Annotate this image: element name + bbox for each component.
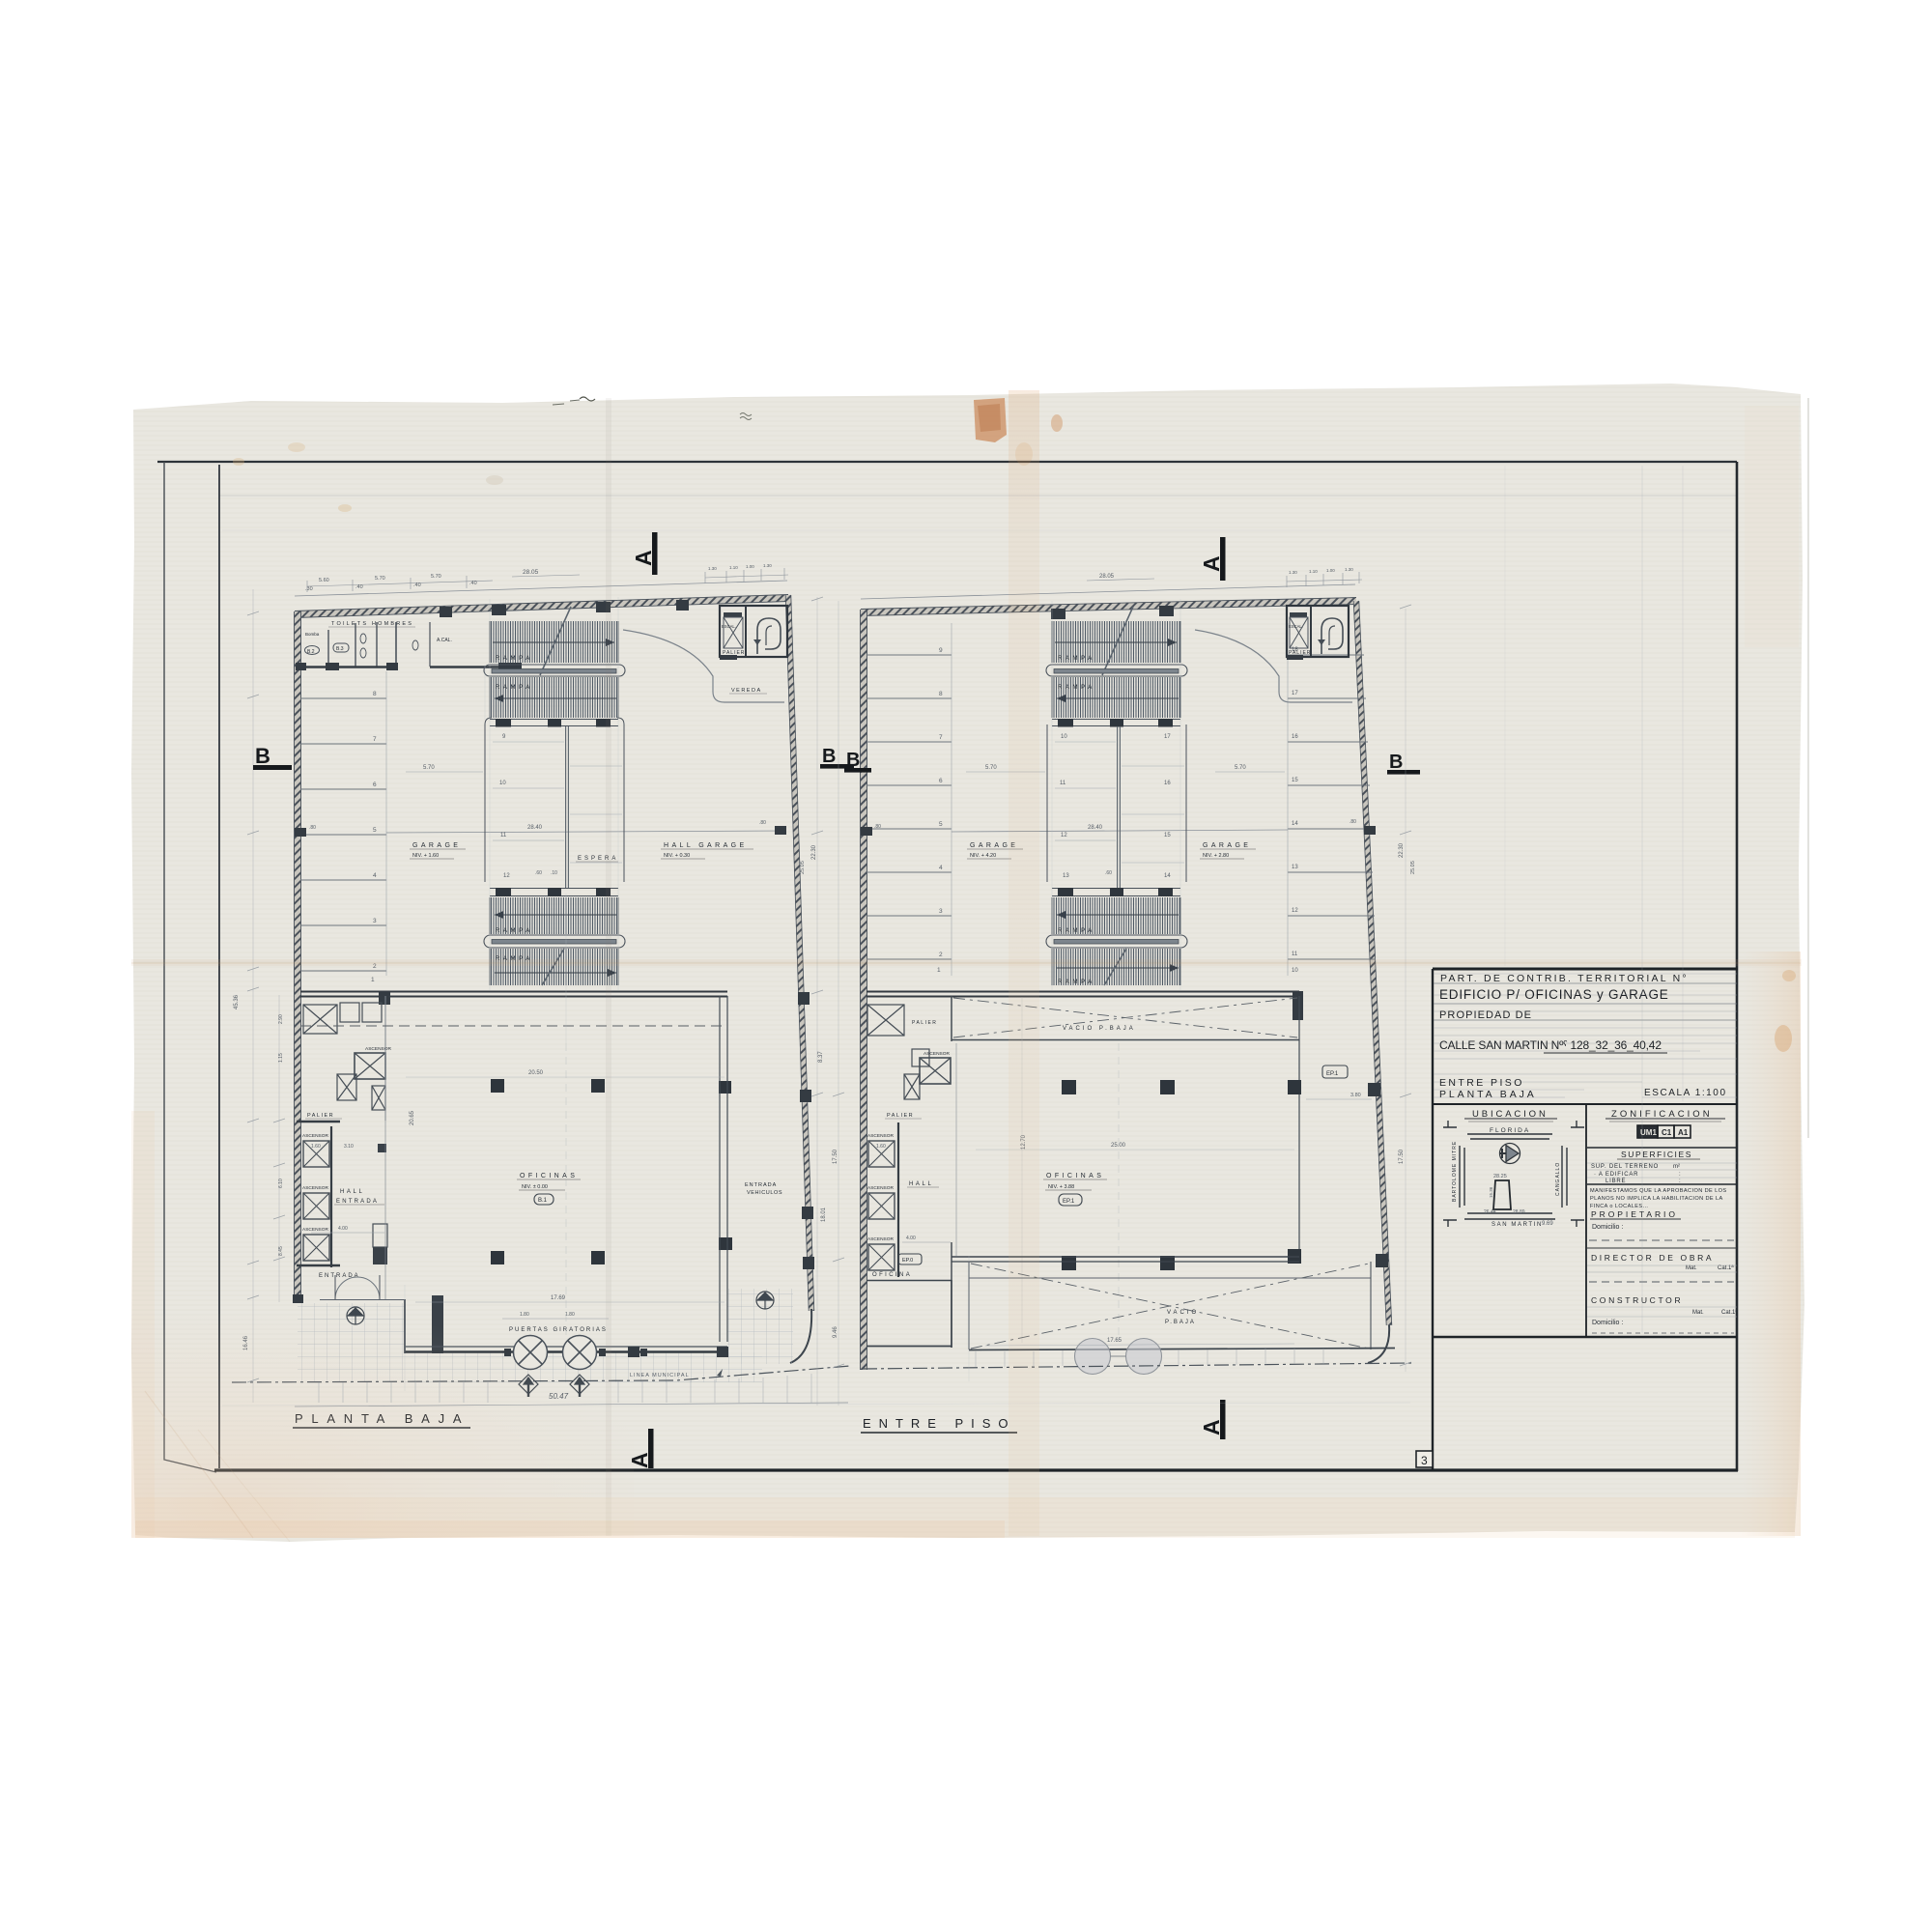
svg-text:3.80: 3.80 xyxy=(1350,1093,1361,1098)
svg-text:TOILETS HOMBRES: TOILETS HOMBRES xyxy=(331,621,413,627)
svg-text:2: 2 xyxy=(939,952,943,958)
svg-text:P.BAJA: P.BAJA xyxy=(1165,1320,1196,1325)
svg-text:PALIER: PALIER xyxy=(912,1020,937,1026)
svg-text:.80: .80 xyxy=(874,824,881,830)
svg-text:8: 8 xyxy=(939,691,943,697)
svg-text:17.69: 17.69 xyxy=(551,1295,566,1301)
svg-text:1.10: 1.10 xyxy=(1309,569,1318,574)
svg-text:5: 5 xyxy=(939,821,943,828)
svg-text:10: 10 xyxy=(1061,734,1067,740)
svg-text:25.05: 25.05 xyxy=(1410,861,1416,874)
svg-text:12: 12 xyxy=(1061,833,1067,838)
svg-text:1: 1 xyxy=(371,977,375,983)
svg-text:10: 10 xyxy=(1292,968,1298,974)
svg-text:ENTRADA: ENTRADA xyxy=(745,1182,777,1188)
svg-text:20.65: 20.65 xyxy=(410,1110,415,1125)
svg-text:7: 7 xyxy=(939,734,943,741)
svg-text:Domicilio :: Domicilio : xyxy=(1592,1320,1623,1326)
svg-text:ENTRADA: ENTRADA xyxy=(319,1273,360,1279)
svg-text:NIV. + 3.88: NIV. + 3.88 xyxy=(1048,1184,1074,1190)
svg-text:Bomba: Bomba xyxy=(305,632,320,637)
svg-text:4.00: 4.00 xyxy=(338,1226,348,1232)
svg-text:1.15: 1.15 xyxy=(278,1053,284,1063)
svg-text:5.70: 5.70 xyxy=(423,765,435,771)
svg-text:1.00: 1.00 xyxy=(746,564,754,569)
svg-text:.30: .30 xyxy=(305,586,313,592)
svg-text:OFICINAS: OFICINAS xyxy=(1046,1173,1104,1179)
svg-text:22.30: 22.30 xyxy=(811,844,817,860)
svg-text:Mat.: Mat. xyxy=(1692,1310,1704,1316)
svg-text:5.70: 5.70 xyxy=(985,765,997,771)
svg-text:6.10: 6.10 xyxy=(278,1179,284,1188)
svg-text:26.44: 26.44 xyxy=(1484,1209,1496,1215)
svg-text:SUPERFICIES: SUPERFICIES xyxy=(1621,1150,1694,1159)
svg-text:PLANOS NO IMPLICA LA HABILITAC: PLANOS NO IMPLICA LA HABILITACION DE LA xyxy=(1590,1196,1723,1202)
svg-text:UM1: UM1 xyxy=(1640,1128,1657,1137)
svg-text:B: B xyxy=(1389,752,1403,773)
svg-text:9.69: 9.69 xyxy=(1542,1221,1553,1227)
svg-text:12: 12 xyxy=(503,873,510,879)
svg-text:16: 16 xyxy=(1292,734,1298,740)
svg-text:4: 4 xyxy=(939,865,943,871)
svg-text:MANIFESTAMOS QUE LA APROBACION: MANIFESTAMOS QUE LA APROBACION DE LOS xyxy=(1590,1188,1727,1194)
svg-text:16: 16 xyxy=(1164,781,1171,786)
svg-text:PROPIEDAD DE: PROPIEDAD DE xyxy=(1439,1009,1534,1021)
svg-text:3: 3 xyxy=(1421,1454,1428,1467)
svg-text:ASCENSOR: ASCENSOR xyxy=(365,1046,391,1052)
svg-text:CONSTRUCTOR: CONSTRUCTOR xyxy=(1591,1295,1684,1305)
svg-text:NIV. + 4.20: NIV. + 4.20 xyxy=(970,853,996,859)
svg-text:28.05: 28.05 xyxy=(523,569,539,576)
svg-text:12: 12 xyxy=(1292,908,1298,914)
svg-text:ESPERA: ESPERA xyxy=(578,856,618,862)
svg-text:ASCENSOR: ASCENSOR xyxy=(302,1185,328,1191)
svg-text:1.00: 1.00 xyxy=(1326,568,1335,573)
svg-text:9.46: 9.46 xyxy=(833,1326,838,1338)
svg-text:A1: A1 xyxy=(1678,1128,1689,1137)
svg-text:25.05: 25.05 xyxy=(800,861,806,874)
svg-text:UBICACION: UBICACION xyxy=(1472,1109,1549,1120)
svg-text:4.00: 4.00 xyxy=(906,1236,916,1241)
svg-text:14: 14 xyxy=(1292,821,1298,827)
svg-text:17.50: 17.50 xyxy=(1399,1149,1405,1164)
svg-text:ASCENSOR: ASCENSOR xyxy=(867,1133,894,1139)
svg-text:EP.1: EP.1 xyxy=(1326,1071,1339,1077)
svg-text:B.2: B.2 xyxy=(307,649,315,655)
svg-text:11: 11 xyxy=(1292,952,1298,957)
svg-text:3.10: 3.10 xyxy=(344,1144,354,1150)
svg-text:13: 13 xyxy=(1063,873,1069,879)
svg-text:HALL: HALL xyxy=(909,1181,933,1187)
svg-text:7: 7 xyxy=(373,736,377,743)
svg-text:PALIER: PALIER xyxy=(887,1113,914,1119)
svg-text:B.3: B.3 xyxy=(336,646,344,652)
svg-text:17: 17 xyxy=(1292,691,1298,696)
svg-text:8.37: 8.37 xyxy=(818,1051,824,1063)
svg-text:RAMPA: RAMPA xyxy=(1058,656,1095,662)
svg-text:EP.1: EP.1 xyxy=(1063,1199,1075,1205)
svg-text:GARAGE: GARAGE xyxy=(412,842,461,849)
svg-text:.80: .80 xyxy=(1350,819,1356,825)
svg-text:B: B xyxy=(255,744,270,768)
svg-text:2.90: 2.90 xyxy=(278,1014,284,1024)
svg-text:RAMPA: RAMPA xyxy=(496,656,533,662)
svg-text:11: 11 xyxy=(500,833,507,838)
svg-text:OFICINA: OFICINA xyxy=(872,1272,912,1278)
svg-text:· A EDIFICAR: · A EDIFICAR xyxy=(1594,1172,1638,1178)
svg-text:B: B xyxy=(846,750,860,771)
svg-text:VACIO P.BAJA: VACIO P.BAJA xyxy=(1063,1026,1136,1032)
svg-text:Domicilio :: Domicilio : xyxy=(1592,1224,1623,1231)
svg-text:22.30: 22.30 xyxy=(1399,842,1405,858)
svg-text:SUP. DEL TERRENO: SUP. DEL TERRENO xyxy=(1591,1164,1659,1170)
svg-text:28.40: 28.40 xyxy=(527,825,543,831)
svg-text:ESCAL.: ESCAL. xyxy=(722,624,736,629)
svg-text:VEHICULOS: VEHICULOS xyxy=(747,1190,782,1196)
svg-text:HALL GARAGE: HALL GARAGE xyxy=(664,842,748,849)
svg-text:1.30: 1.30 xyxy=(1345,567,1353,572)
svg-text:17: 17 xyxy=(1164,734,1171,740)
svg-text:LIBRE: LIBRE xyxy=(1605,1179,1626,1184)
svg-text:FLORIDA: FLORIDA xyxy=(1490,1127,1530,1134)
svg-text:5.70: 5.70 xyxy=(375,576,385,582)
svg-text:.80: .80 xyxy=(759,820,766,826)
svg-text:1.30: 1.30 xyxy=(1289,570,1297,575)
svg-text:ASCENSOR: ASCENSOR xyxy=(867,1185,894,1191)
svg-text:DIRECTOR DE OBRA: DIRECTOR DE OBRA xyxy=(1591,1253,1715,1263)
svg-text:PLANTA BAJA: PLANTA BAJA xyxy=(1439,1089,1536,1100)
svg-text:BARTOLOME MITRE: BARTOLOME MITRE xyxy=(1452,1141,1458,1202)
svg-text:OFICINAS: OFICINAS xyxy=(520,1173,578,1179)
svg-text:RAMPA: RAMPA xyxy=(1058,928,1095,934)
svg-text:9: 9 xyxy=(939,647,943,654)
svg-text:3: 3 xyxy=(373,918,377,924)
svg-text:NIV. + 0.30: NIV. + 0.30 xyxy=(664,853,690,859)
svg-text:6: 6 xyxy=(939,778,943,784)
svg-text:.40: .40 xyxy=(355,584,363,590)
svg-text:17.65: 17.65 xyxy=(1107,1338,1122,1344)
svg-text:5.70: 5.70 xyxy=(1235,765,1246,771)
svg-text:15: 15 xyxy=(1292,778,1298,783)
svg-text:1.60: 1.60 xyxy=(311,1144,321,1150)
svg-text:.60: .60 xyxy=(535,870,542,876)
svg-text:m²: m² xyxy=(1673,1164,1680,1170)
svg-text:NIV. + 2.80: NIV. + 2.80 xyxy=(1203,853,1229,859)
svg-text:RAMPA: RAMPA xyxy=(1058,980,1095,985)
svg-text:8.45: 8.45 xyxy=(278,1246,284,1256)
svg-text:ASCENSOR: ASCENSOR xyxy=(302,1227,328,1233)
svg-text:11: 11 xyxy=(1060,781,1066,786)
svg-text:Cat.1ª: Cat.1ª xyxy=(1721,1309,1738,1316)
svg-text:5.70: 5.70 xyxy=(431,574,441,580)
svg-text:ASCENSOR: ASCENSOR xyxy=(923,1051,950,1057)
svg-text:EDIFICIO P/ OFICINAS y GARAGE: EDIFICIO P/ OFICINAS y GARAGE xyxy=(1439,987,1671,1002)
svg-text:45.36: 45.36 xyxy=(234,994,240,1009)
svg-text:HALL: HALL xyxy=(340,1189,364,1195)
svg-text:ENTRE PISO: ENTRE PISO xyxy=(1439,1077,1524,1089)
svg-text:PART. DE CONTRIB. TERRITORIAL: PART. DE CONTRIB. TERRITORIAL N° xyxy=(1440,973,1690,984)
svg-text:RAMPA: RAMPA xyxy=(496,685,533,691)
svg-text:.60: .60 xyxy=(1105,870,1112,876)
svg-text:1.30: 1.30 xyxy=(708,566,717,571)
svg-text:RAMPA: RAMPA xyxy=(1058,685,1095,691)
svg-text:1.30: 1.30 xyxy=(763,563,772,568)
svg-text:ZONIFICACION: ZONIFICACION xyxy=(1611,1109,1714,1120)
svg-text:B.1: B.1 xyxy=(538,1198,548,1204)
svg-text:ESCAL.: ESCAL. xyxy=(1289,624,1303,629)
svg-text:4: 4 xyxy=(373,872,377,879)
svg-text:15: 15 xyxy=(1164,833,1171,838)
svg-text:ESCALA 1:100: ESCALA 1:100 xyxy=(1644,1088,1727,1098)
svg-text:28.25: 28.25 xyxy=(1493,1174,1507,1179)
svg-text:1.10: 1.10 xyxy=(729,565,738,570)
svg-text:ASCENSOR: ASCENSOR xyxy=(867,1236,894,1242)
svg-text:EP.0: EP.0 xyxy=(902,1258,913,1264)
svg-text:ASCENSOR: ASCENSOR xyxy=(302,1133,328,1139)
svg-text:28.05: 28.05 xyxy=(1099,574,1115,580)
svg-text:.40: .40 xyxy=(469,581,477,586)
svg-text:3: 3 xyxy=(939,908,943,915)
svg-text:CANGALLO: CANGALLO xyxy=(1555,1162,1561,1196)
svg-text:PROPIETARIO: PROPIETARIO xyxy=(1591,1209,1678,1219)
svg-text:NIV. ± 0.00: NIV. ± 0.00 xyxy=(522,1184,548,1190)
svg-text:1.60: 1.60 xyxy=(876,1144,886,1150)
svg-text:Mat.: Mat. xyxy=(1686,1265,1697,1271)
svg-text:6: 6 xyxy=(373,781,377,788)
svg-text:10: 10 xyxy=(499,781,506,786)
svg-text:VACIO: VACIO xyxy=(1167,1310,1199,1316)
svg-text:.10: .10 xyxy=(551,870,557,876)
svg-text:5: 5 xyxy=(373,827,377,834)
svg-text:28.89: 28.89 xyxy=(1513,1209,1525,1215)
svg-text:GARAGE: GARAGE xyxy=(1203,842,1251,849)
svg-text:5.60: 5.60 xyxy=(319,578,329,583)
svg-text:B: B xyxy=(822,746,836,767)
svg-text:18.01: 18.01 xyxy=(821,1207,827,1222)
svg-text:ENTRE PISO: ENTRE PISO xyxy=(863,1416,1017,1431)
svg-text:A.CAL.: A.CAL. xyxy=(437,638,452,643)
svg-text:NIV. + 1.60: NIV. + 1.60 xyxy=(412,853,439,859)
svg-text:15.36: 15.36 xyxy=(1489,1186,1493,1198)
svg-text:ENTRADA: ENTRADA xyxy=(336,1199,379,1205)
svg-text:1: 1 xyxy=(937,967,941,974)
svg-text:8: 8 xyxy=(373,691,377,697)
svg-text:28.40: 28.40 xyxy=(1088,825,1103,831)
svg-text:.40: .40 xyxy=(413,582,421,588)
svg-text:RAMPA: RAMPA xyxy=(496,928,533,934)
svg-text:.80: .80 xyxy=(309,825,316,831)
svg-text:C1: C1 xyxy=(1662,1128,1672,1137)
svg-text:14: 14 xyxy=(1164,873,1171,879)
svg-text:LINEA MUNICIPAL: LINEA MUNICIPAL xyxy=(630,1373,690,1378)
svg-text:CALLE SAN MARTIN Nºˤ 128_32_36: CALLE SAN MARTIN Nºˤ 128_32_36_40,42 xyxy=(1439,1038,1663,1052)
svg-text:13: 13 xyxy=(1292,865,1298,870)
svg-text:PALIER: PALIER xyxy=(307,1113,334,1119)
svg-text:20.50: 20.50 xyxy=(528,1070,544,1076)
svg-text:SAN MARTIN: SAN MARTIN xyxy=(1492,1222,1543,1228)
svg-text:17.50: 17.50 xyxy=(833,1149,838,1164)
svg-text:VEREDA: VEREDA xyxy=(731,688,762,694)
